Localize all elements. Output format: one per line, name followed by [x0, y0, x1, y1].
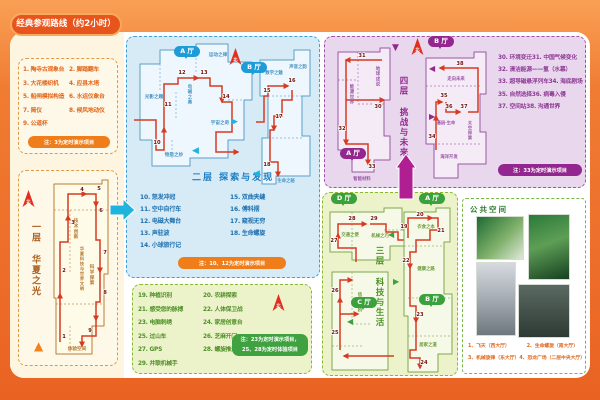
chevron-right-icon: ▶: [429, 112, 435, 121]
svg-text:29: 29: [370, 216, 378, 222]
chevron-left-icon: ◀: [192, 147, 199, 156]
svg-text:基因·生命: 基因·生命: [436, 119, 456, 126]
list-item: 25. 过山车: [138, 331, 203, 345]
floor3-hallAB-floorplan: 192021222324衣食之本健康之路居家之道: [394, 206, 458, 374]
arrow-floor3-to-floor4: [396, 154, 416, 200]
list-item: 19. 种植识别: [138, 290, 203, 304]
svg-text:2: 2: [62, 268, 66, 274]
compass-north-icon: 北: [411, 38, 424, 57]
svg-text:华夏科技与世界文明: 华夏科技与世界文明: [79, 245, 85, 292]
triangle-down-icon: ▼: [392, 44, 399, 53]
list-item: 8. 候风地动仪: [69, 105, 115, 119]
public-space-title: 公共空间: [470, 204, 508, 215]
list-item: 24. 家居创意台: [203, 317, 268, 331]
svg-text:交通之便: 交通之便: [341, 231, 359, 238]
svg-text:机械之巧: 机械之巧: [371, 232, 389, 239]
list-item: 2. 脚踏翻车: [69, 64, 115, 78]
list-item: 5. 船闸模拟构造: [23, 91, 69, 105]
list-item: 36. 病毒入侵: [532, 92, 566, 98]
svg-text:34: 34: [428, 134, 436, 140]
page-title: 经典参观路线（约2小时）: [10, 13, 122, 36]
floor4-note-text: 注：33为定时演示项目: [501, 167, 579, 174]
caption-flying-apsaras: 1、飞天（西大厅）: [468, 342, 510, 349]
svg-text:海洋开发: 海洋开发: [440, 153, 458, 160]
public-space-caption-row2: 3、机械旋律（东大厅） 4、恐龙广场（二层中央大厅）: [468, 354, 582, 361]
list-item: 3. 大花楼织机: [23, 78, 69, 92]
floor3-hallB-pill: B 厅: [419, 294, 445, 305]
svg-text:数学之魅: 数学之魅: [265, 69, 283, 76]
svg-text:13: 13: [200, 70, 208, 76]
floor3-hallC-floorplan: 2526信息之桥: [324, 268, 396, 374]
svg-text:体验空间: 体验空间: [68, 345, 87, 352]
svg-text:14: 14: [222, 94, 230, 100]
svg-text:12: 12: [178, 70, 186, 76]
svg-text:7: 7: [103, 250, 107, 256]
list-item: 29. 并联机械手: [138, 358, 203, 372]
svg-text:居家之道: 居家之道: [419, 341, 437, 348]
list-item: 7. 简仪: [23, 105, 69, 119]
floor2-note-text: 注：10、12为定时演示项目: [181, 260, 283, 267]
svg-text:31: 31: [358, 53, 366, 59]
dinosaur-square-photo: [518, 284, 570, 338]
list-item: 15. 双曲夹缝: [230, 192, 312, 204]
floor4-hallB-floorplan: 3435363738走向未来基因·生命太空探索海洋开发: [416, 46, 492, 186]
svg-text:20: 20: [416, 212, 424, 218]
list-item: 10. 怒发冲冠: [140, 192, 222, 204]
svg-text:衣食之本: 衣食之本: [417, 223, 435, 230]
svg-text:11: 11: [164, 102, 172, 108]
caption-dinosaur-square: 4、恐龙广场（二层中央大厅）: [519, 354, 585, 361]
floor1-title: 一层 华夏之光: [29, 222, 42, 297]
svg-text:声音之韵: 声音之韵: [288, 63, 307, 70]
svg-text:6: 6: [99, 208, 103, 214]
svg-text:22: 22: [402, 258, 410, 264]
svg-text:4: 4: [80, 187, 84, 193]
svg-text:33: 33: [368, 164, 376, 170]
list-item: 30. 环境变迁: [498, 55, 532, 61]
svg-text:物质之妙: 物质之妙: [165, 151, 184, 158]
arrow-floor1-to-floor2: [110, 198, 136, 222]
svg-text:能源世界: 能源世界: [350, 83, 355, 106]
list-item: 21. 感受您的脉搏: [138, 304, 203, 318]
svg-text:16: 16: [288, 78, 296, 84]
svg-text:10: 10: [153, 140, 161, 146]
list-item: 18. 生命螺旋: [230, 228, 312, 240]
floor2-hallA-pill: A 厅: [174, 46, 200, 57]
svg-text:21: 21: [437, 228, 445, 234]
floor3-hallA-pill: A 厅: [419, 193, 445, 204]
floor1-exhibit-list: 1. 陶寺古观象台2. 脚踏翻车3. 大花楼织机4. 应县木塔5. 船闸模拟构造…: [23, 64, 115, 132]
floor3-title: 三层 科技与生活: [373, 246, 385, 328]
svg-text:宇宙之奇: 宇宙之奇: [211, 119, 230, 126]
list-item: 33. 超导磁悬浮列车: [498, 79, 549, 85]
floor3-hallD-pill: D 厅: [331, 193, 357, 204]
list-item: 27. GPS: [138, 344, 203, 358]
svg-text:技术创新: 技术创新: [73, 217, 79, 240]
svg-text:24: 24: [420, 360, 428, 366]
svg-text:15: 15: [263, 88, 271, 94]
svg-text:27: 27: [330, 238, 338, 244]
list-item: 20. 农耕探索: [203, 290, 268, 304]
list-item: 14. 小球旅行记: [140, 240, 222, 252]
floor2-note-pill: 注：10、12为定时演示项目: [178, 257, 286, 269]
caption-mechanical-melody: 3、机械旋律（东大厅）: [468, 354, 519, 361]
list-item: 22. 人体保卫战: [203, 304, 268, 318]
svg-text:运动之律: 运动之律: [209, 51, 228, 58]
svg-text:18: 18: [263, 162, 271, 168]
caption-life-spiral: 2、生命螺旋（南大厅）: [527, 342, 578, 349]
svg-text:30: 30: [374, 104, 382, 110]
list-item: 9. 公道杯: [23, 118, 69, 132]
list-item: 17. 窥视无穷: [230, 216, 312, 228]
svg-text:走向未来: 走向未来: [446, 75, 465, 82]
svg-text:26: 26: [331, 288, 339, 294]
svg-text:8: 8: [103, 290, 107, 296]
list-item: 37. 空间站: [498, 104, 526, 110]
svg-text:36: 36: [445, 104, 453, 110]
floor4-note-pill: 注：33为定时演示项目: [498, 164, 582, 176]
svg-text:38: 38: [456, 61, 464, 67]
svg-text:23: 23: [416, 312, 424, 318]
compass-label: 北: [272, 303, 285, 309]
svg-text:光影之趣: 光影之趣: [144, 93, 164, 100]
life-spiral-photo: [528, 214, 570, 280]
floor4-exhibit-list: 30. 环境变迁31. 中国气候变化32. 清洁能源——氢（水幕）33. 超导磁…: [498, 52, 584, 113]
chevron-right-icon: ▶: [393, 277, 399, 286]
compass-north-icon: 北: [272, 294, 285, 313]
svg-text:5: 5: [97, 186, 101, 192]
svg-text:32: 32: [338, 126, 346, 132]
floor4-hallA-floorplan: 31303233能源世界地球述说智能材料: [332, 44, 396, 184]
svg-text:35: 35: [440, 93, 448, 99]
svg-text:地球述说: 地球述说: [376, 65, 381, 88]
floor3-hallC-pill: C 厅: [351, 297, 377, 308]
floor3-note-pill: 注：23为定时演示项目， 25、28为定时体验项目: [232, 334, 308, 356]
svg-text:健康之路: 健康之路: [417, 265, 435, 272]
chevron-left-icon: ◀: [253, 170, 260, 179]
floor3-note-line2: 25、28为定时体验项目: [235, 345, 305, 355]
entrance-triangle-icon: ▲: [34, 342, 43, 351]
list-item: 34. 海底剧场: [549, 79, 583, 85]
svg-text:25: 25: [331, 330, 339, 336]
floor2-title: 二层 探索与发现: [192, 170, 274, 183]
svg-text:37: 37: [460, 104, 468, 110]
svg-text:9: 9: [88, 328, 92, 334]
svg-text:电磁之奥: 电磁之奥: [188, 83, 193, 106]
chevron-right-icon: ▶: [231, 118, 238, 127]
list-item: 13. 声驻波: [140, 228, 222, 240]
dinosaur-skeleton-photo: [476, 262, 516, 336]
svg-text:生命之秘: 生命之秘: [277, 177, 295, 184]
compass-north-icon: 北: [229, 48, 242, 67]
compass-label: 北: [229, 57, 242, 63]
svg-text:1: 1: [62, 334, 66, 340]
list-item: 12. 电磁大舞台: [140, 216, 222, 228]
floor1-note-text: 注：3为定时演示项目: [31, 139, 107, 146]
floor4-title: 四层 挑战与未来: [397, 76, 409, 158]
floor3-exhibit-list: 19. 种植识别20. 农耕探索21. 感受您的脉搏22. 人体保卫战23. 电…: [138, 290, 268, 371]
chevron-left-icon: ◀: [388, 230, 394, 239]
chevron-left-icon: ◀: [347, 317, 353, 326]
floor2-hallB-pill: B 厅: [241, 62, 267, 73]
chevron-left-icon: ◀: [429, 64, 435, 73]
list-item: 31. 中国气候变化: [532, 55, 577, 61]
compass-label: 北: [22, 199, 35, 205]
list-item: 16. 傅科摆: [230, 204, 312, 216]
list-item: 32. 清洁能源——氢（水幕）: [498, 67, 571, 73]
list-item: 4. 应县木塔: [69, 78, 115, 92]
flying-apsaras-photo: [476, 216, 524, 260]
floor1-floorplan: 123456789技术创新华夏科技与世界文明科学探索体验空间: [46, 176, 116, 360]
svg-text:科学探索: 科学探索: [90, 263, 95, 286]
floor4-hallB-pill: B 厅: [428, 36, 454, 47]
floor1-note-pill: 注：3为定时演示项目: [28, 136, 110, 148]
list-item: 6. 水运仪象台: [69, 91, 115, 105]
compass-label: 北: [411, 47, 424, 53]
compass-north-icon: 北: [22, 190, 35, 209]
svg-text:28: 28: [348, 216, 356, 222]
list-item: 11. 空中自行车: [140, 204, 222, 216]
list-item: 1. 陶寺古观象台: [23, 64, 69, 78]
svg-text:智能材料: 智能材料: [353, 175, 371, 182]
list-item: 35. 自然选择: [498, 92, 532, 98]
floor2-exhibit-list: 10. 怒发冲冠11. 空中自行车12. 电磁大舞台13. 声驻波14. 小球旅…: [140, 192, 312, 252]
svg-text:17: 17: [275, 114, 283, 120]
list-item: 23. 电脑刺绣: [138, 317, 203, 331]
floor3-note-line1: 注：23为定时演示项目，: [235, 335, 305, 345]
floor4-hallA-pill: A 厅: [340, 148, 366, 159]
public-space-caption-row1: 1、飞天（西大厅） 2、生命螺旋（南大厅）: [468, 342, 578, 349]
svg-text:19: 19: [400, 224, 408, 230]
list-item: 38. 沟通世界: [526, 104, 560, 110]
